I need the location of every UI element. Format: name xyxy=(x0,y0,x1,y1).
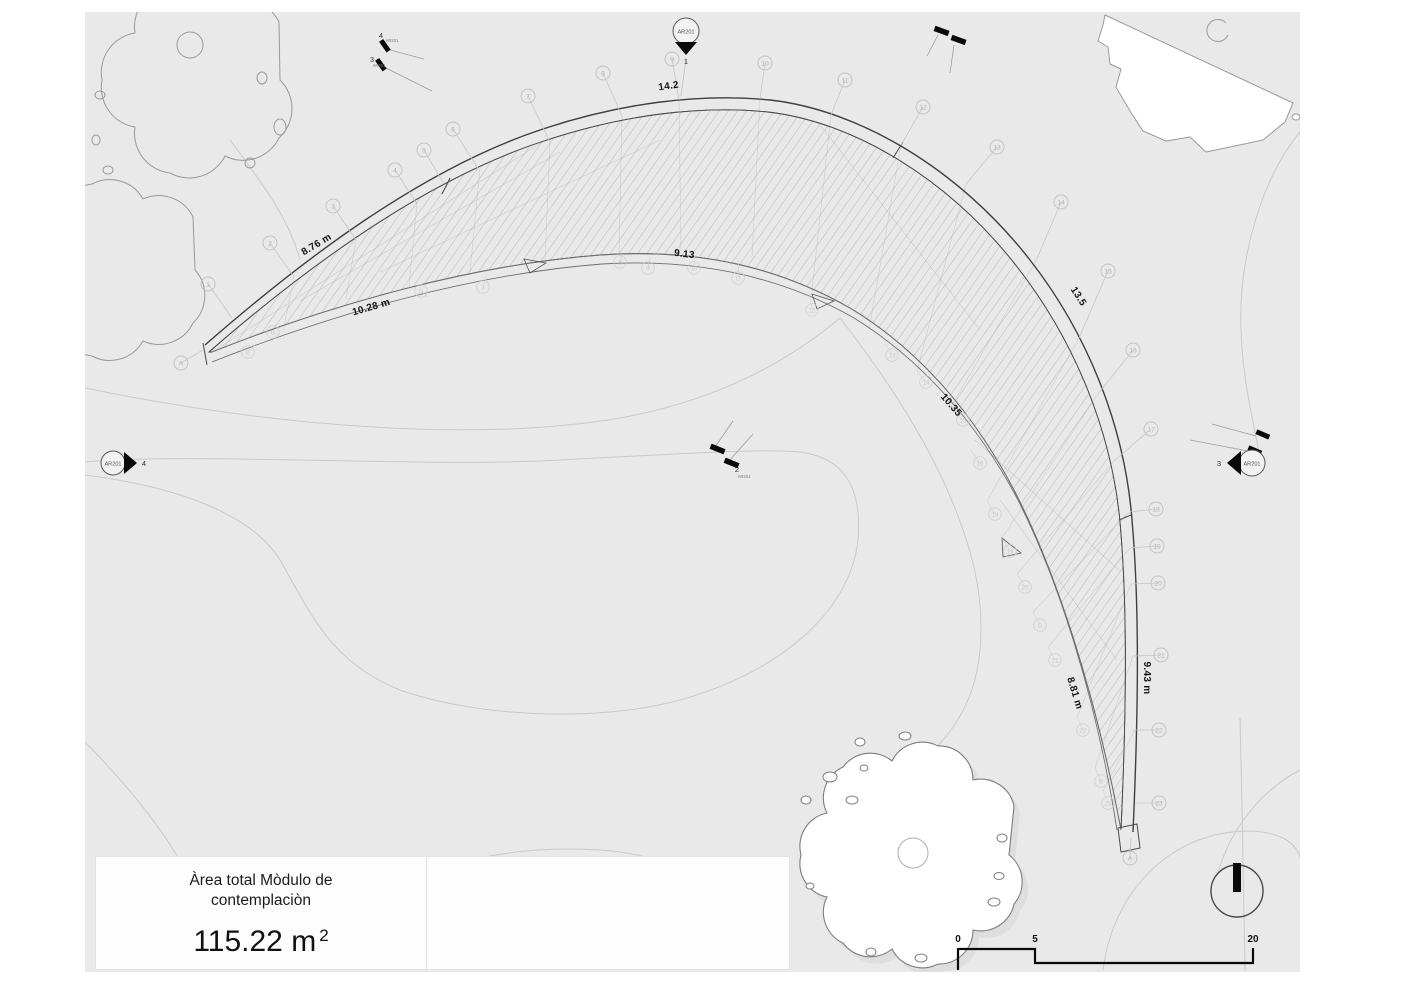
grid-bubble-label: 22 xyxy=(1155,727,1163,734)
grid-bubble-label: 11 xyxy=(735,275,742,282)
total-area-value: 115.22 m2 xyxy=(193,925,328,959)
section-ref-label: AR201 xyxy=(677,30,694,36)
section-ref-label: AR201 xyxy=(386,38,399,43)
grid-bubble-label: 18 xyxy=(1152,506,1160,513)
grid-bubble-label: 13 xyxy=(993,144,1001,151)
grid-bubble-label: 16 xyxy=(977,460,984,467)
grid-bubble-label: A xyxy=(179,360,184,367)
grid-bubble-label: 20 xyxy=(1022,584,1029,591)
grid-bubble-label: 15 xyxy=(1104,268,1112,275)
grid-bubble-label: 16 xyxy=(1129,347,1137,354)
title-block-keymap-cell xyxy=(427,857,789,969)
title-line-1: Àrea total Mòdulo de xyxy=(189,871,332,891)
section-number: 1 xyxy=(684,57,688,66)
grid-bubble-label: 6 xyxy=(451,126,455,133)
grid-bubble-label: 10 xyxy=(691,265,698,272)
grid-bubble-label: 22 xyxy=(1080,727,1087,734)
grid-bubble-label: 7 xyxy=(526,93,530,100)
grid-bubble-label: B xyxy=(1099,778,1103,785)
section-number: 2 xyxy=(735,465,739,474)
grid-bubble-label: 5 xyxy=(422,147,426,154)
grid-bubble-label: E xyxy=(246,349,250,356)
grid-bubble-label: 23 xyxy=(1155,800,1163,807)
grid-bubble-label: 9 xyxy=(670,56,674,63)
grid-bubble-label: 13 xyxy=(889,352,896,359)
grid-bubble-label: 3 xyxy=(481,284,485,291)
section-number: 4 xyxy=(379,31,383,40)
dimension-label: 9.43 m xyxy=(1141,662,1152,695)
section-ref-label: AR201 xyxy=(373,63,386,68)
section-number: 4 xyxy=(142,459,146,468)
grid-bubble-label: 8 xyxy=(618,259,622,266)
grid-bubble-label: 1 xyxy=(206,281,210,288)
section-ref-label: AR201 xyxy=(104,462,121,468)
grid-bubble-label: 21 xyxy=(1157,652,1165,659)
title-block: Àrea total Mòdulo de contemplaciòn 115.2… xyxy=(95,856,790,970)
scale-tick-5: 5 xyxy=(1032,934,1038,945)
section-number: 3 xyxy=(1217,459,1221,468)
grid-bubble-label: 20 xyxy=(1154,580,1162,587)
scale-tick-0: 0 xyxy=(955,934,961,945)
grid-bubble-label: 19 xyxy=(1007,548,1014,555)
section-ref-label: AR201 xyxy=(738,474,751,479)
plan-drawing: EBD38910111213141516181920D2122B23 A1234… xyxy=(0,0,1415,1000)
grid-bubble-label: 10 xyxy=(761,60,769,67)
grid-bubble-label: 8 xyxy=(601,70,605,77)
grid-bubble-label: 9 xyxy=(646,265,650,272)
grid-bubble-label: 23 xyxy=(1105,800,1112,807)
title-block-text: Àrea total Mòdulo de contemplaciòn 115.2… xyxy=(96,857,427,969)
grid-bubble-label: A xyxy=(1128,855,1133,862)
grid-bubble-label: 17 xyxy=(1147,426,1155,433)
grid-bubble-label: 15 xyxy=(960,417,967,424)
title-line-2: contemplaciòn xyxy=(211,891,311,911)
grid-bubble-label: D xyxy=(1038,622,1043,629)
grid-bubble-label: 12 xyxy=(809,307,816,314)
grid-bubble-label: 2 xyxy=(268,240,272,247)
grid-bubble-label: 14 xyxy=(923,379,930,386)
site-plan-page: EBD38910111213141516181920D2122B23 A1234… xyxy=(0,0,1415,1000)
grid-bubble-label: 3 xyxy=(331,203,335,210)
grid-bubble-label: 19 xyxy=(1153,543,1161,550)
grid-bubble-label: D xyxy=(419,288,424,295)
scale-tick-20: 20 xyxy=(1247,934,1259,945)
grid-bubble-label: 4 xyxy=(393,167,397,174)
grid-bubble-label: 12 xyxy=(919,104,927,111)
grid-bubble-label: 11 xyxy=(841,77,848,84)
grid-bubble-label: 21 xyxy=(1052,657,1059,664)
section-ref-label: AR201 xyxy=(1243,462,1260,468)
grid-bubble-label: B xyxy=(271,329,275,336)
north-needle-icon xyxy=(1233,863,1241,892)
grid-bubble-label: 14 xyxy=(1057,199,1065,206)
grid-bubble-label: 18 xyxy=(992,511,999,518)
